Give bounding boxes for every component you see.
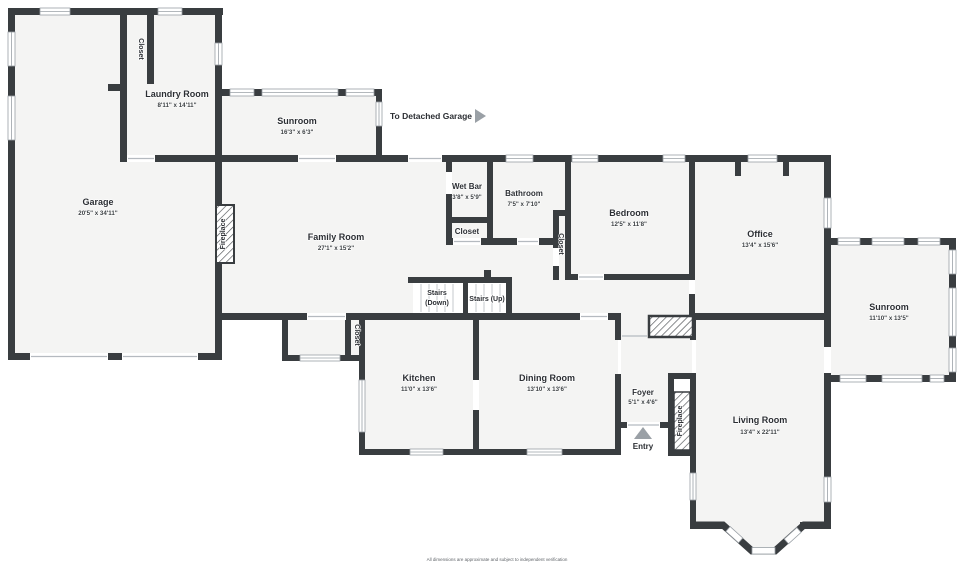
label-closet-bedroom: Closet: [557, 233, 564, 255]
label-bathroom: Bathroom: [505, 189, 543, 198]
detached-garage-arrow-icon: [475, 109, 486, 123]
wall-segment: [506, 277, 512, 319]
label-living-room: Living Room: [733, 415, 788, 425]
wall-segment: [689, 313, 831, 320]
wall-segment: [446, 217, 493, 223]
wall-segment: [345, 313, 580, 320]
label-wet-bar: Wet Bar: [452, 182, 482, 191]
label-kitchen: Kitchen: [402, 373, 435, 383]
disclaimer-text: All dimensions are approximate and subje…: [427, 557, 568, 562]
wall-segment: [565, 155, 571, 280]
dims-laundry: 8'11" x 14'11": [157, 102, 196, 109]
label-closet-wetbar: Closet: [455, 227, 480, 236]
dims-sunroom-top: 16'3" x 6'3": [281, 129, 314, 136]
dims-family-room: 27'1" x 15'2": [318, 245, 354, 252]
hallway-hatched-chase-icon: [649, 316, 693, 337]
wall-segment: [668, 373, 674, 456]
label-stairs-down-2: (Down): [425, 300, 449, 307]
wall-segment: [484, 270, 491, 278]
label-closet-kitchen: Closet: [353, 324, 360, 346]
label-stairs-down-1: Stairs: [427, 290, 447, 297]
floor-plan-page: Garage 20'5" x 34'11" Laundry Room 8'11"…: [0, 0, 960, 566]
wall-segment: [668, 450, 696, 456]
floor-garage: [12, 12, 219, 357]
door-opening: [689, 280, 695, 294]
wall-segment: [690, 522, 723, 529]
dims-foyer: 5'1" x 4'6": [628, 399, 658, 406]
dims-living-room: 13'4" x 22'11": [740, 429, 780, 436]
door-opening: [473, 380, 479, 410]
wall-segment: [446, 155, 452, 245]
wall-segment: [147, 12, 154, 84]
wall-segment: [824, 373, 831, 528]
label-family-room: Family Room: [308, 232, 365, 242]
label-fireplace-foyer: Fireplace: [677, 406, 684, 437]
dims-wet-bar: 3'8" x 5'9": [452, 194, 482, 201]
label-fireplace-family: Fireplace: [220, 219, 227, 250]
floor-plan-canvas: Garage 20'5" x 34'11" Laundry Room 8'11"…: [0, 0, 960, 566]
dims-garage: 20'5" x 34'11": [78, 210, 118, 217]
label-bedroom: Bedroom: [609, 208, 649, 218]
label-dining-room: Dining Room: [519, 373, 575, 383]
bay-window-bottom: [752, 548, 775, 555]
wall-segment: [215, 313, 307, 320]
label-stairs-up: Stairs (Up): [469, 296, 504, 303]
wall-segment: [345, 313, 351, 361]
wall-segment: [735, 162, 741, 176]
dims-bedroom: 12'5" x 11'8": [611, 221, 647, 228]
wall-segment: [800, 522, 831, 529]
wall-segment: [408, 277, 512, 283]
label-to-detached-garage: To Detached Garage: [390, 111, 472, 121]
label-sunroom-top: Sunroom: [277, 116, 317, 126]
label-foyer: Foyer: [632, 388, 654, 397]
label-entry: Entry: [633, 442, 654, 451]
wall-segment: [359, 449, 621, 455]
wall-segment: [487, 155, 493, 245]
label-office: Office: [747, 229, 773, 239]
label-closet-laundry: Closet: [137, 38, 144, 60]
label-sunroom-right: Sunroom: [869, 302, 909, 312]
dims-dining-room: 13'10" x 13'6": [527, 386, 567, 393]
floor-kitchen-dining: [362, 316, 618, 452]
dims-kitchen: 11'0" x 13'6": [401, 386, 437, 393]
wall-segment: [783, 162, 789, 176]
wall-segment: [689, 155, 695, 320]
dims-bathroom: 7'5" x 7'10": [508, 201, 541, 208]
wall-segment: [615, 313, 621, 340]
wall-segment: [108, 84, 122, 91]
wall-segment: [282, 313, 288, 361]
label-laundry: Laundry Room: [145, 89, 209, 99]
wall-segment: [463, 283, 468, 315]
floor-foyer: [621, 373, 668, 423]
wall-segment: [615, 374, 621, 455]
entry-arrow-icon: [634, 427, 652, 439]
dims-office: 13'4" x 15'6": [742, 242, 778, 249]
dims-sunroom-right: 11'10" x 13'5": [869, 315, 909, 322]
label-garage: Garage: [82, 197, 113, 207]
